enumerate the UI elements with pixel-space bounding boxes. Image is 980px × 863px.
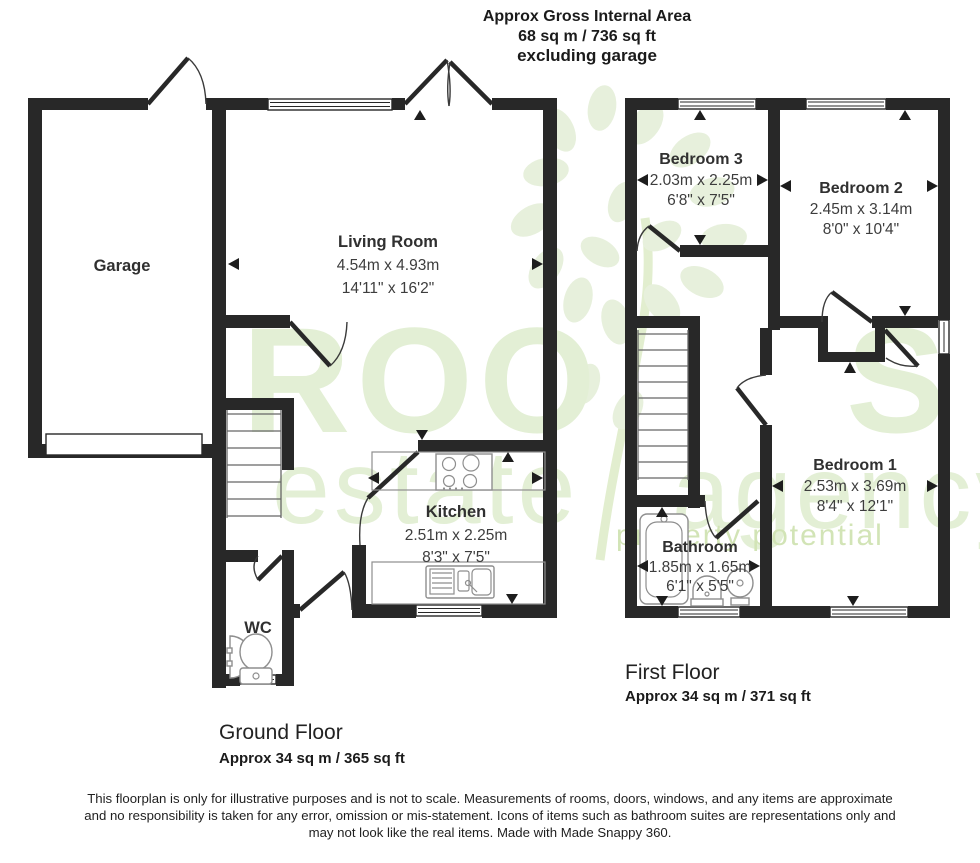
door [300, 572, 352, 610]
garage-door [46, 434, 202, 455]
door [737, 375, 766, 425]
room-label-kitchen: Kitchen [426, 503, 487, 521]
room-size-ft: 6'8" x 7'5" [667, 192, 735, 209]
room-label-bathroom: Bathroom [662, 539, 738, 556]
window [806, 99, 886, 109]
floorplan-page: ROO S estate agency property potential A… [0, 0, 980, 863]
kitchen-sink-icon [426, 566, 494, 598]
window [678, 99, 756, 109]
disclaimer-line1: This floorplan is only for illustrative … [87, 791, 893, 806]
window [830, 607, 908, 617]
dimension-arrow-icon [694, 110, 706, 120]
disclaimer-line2: and no responsibility is taken for any e… [84, 808, 895, 823]
dimension-arrow-icon [637, 174, 648, 186]
room-size-m: 1.85m x 1.65m [649, 559, 752, 576]
dimension-arrow-icon [757, 174, 768, 186]
room-size-ft: 8'0" x 10'4" [823, 221, 899, 238]
dimension-arrow-icon [656, 507, 668, 517]
window [939, 320, 949, 354]
dimension-arrow-icon [414, 110, 426, 120]
room-label-garage: Garage [94, 257, 151, 275]
ground-floor-title: Ground Floor [219, 721, 343, 744]
window [268, 99, 392, 110]
floor-captions: Ground Floor Approx 34 sq m / 365 sq ft … [219, 661, 811, 767]
header-line3: excluding garage [517, 46, 657, 65]
dimension-arrow-icon [228, 258, 239, 270]
room-size-m: 2.51m x 2.25m [405, 527, 508, 544]
header-line1: Approx Gross Internal Area [483, 8, 691, 25]
window [678, 607, 740, 617]
room-label-bedroom-2: Bedroom 2 [819, 180, 903, 197]
room-size-ft: 6'1" x 5'5" [666, 578, 734, 595]
door [254, 556, 282, 580]
disclaimer-line3: may not look like the real items. Made w… [309, 825, 672, 840]
room-size-ft: 8'3" x 7'5" [422, 549, 490, 566]
first-floor-title: First Floor [625, 661, 720, 684]
ground-floor-area: Approx 34 sq m / 365 sq ft [219, 750, 405, 767]
room-size-m: 2.45m x 3.14m [810, 201, 913, 218]
french-doors [405, 60, 492, 106]
first-floor-area: Approx 34 sq m / 371 sq ft [625, 688, 811, 705]
room-label-bedroom-3: Bedroom 3 [659, 151, 743, 168]
hob-icon [436, 454, 492, 490]
disclaimer: This floorplan is only for illustrative … [84, 791, 895, 840]
room-size-ft: 8'4" x 12'1" [817, 498, 893, 515]
toilet-icon [240, 634, 272, 684]
floorplan-svg: ROO S estate agency property potential A… [0, 0, 980, 863]
dimension-arrow-icon [847, 596, 859, 606]
room-size-m: 4.54m x 4.93m [337, 257, 440, 274]
room-size-m: 2.53m x 3.69m [804, 478, 907, 495]
room-label-living-room: Living Room [338, 233, 438, 251]
room-label-wc: WC [244, 619, 272, 637]
room-size-ft: 14'11" x 16'2" [342, 280, 434, 297]
dimension-arrow-icon [780, 180, 791, 192]
dimension-arrow-icon [927, 180, 938, 192]
room-size-m: 2.03m x 2.25m [650, 172, 753, 189]
dimension-arrow-icon [899, 110, 911, 120]
dimension-arrow-icon [506, 594, 518, 604]
header: Approx Gross Internal Area 68 sq m / 736… [483, 8, 691, 65]
door [148, 58, 206, 104]
header-line2: 68 sq m / 736 sq ft [518, 28, 657, 45]
window [416, 605, 482, 616]
room-label-bedroom-1: Bedroom 1 [813, 457, 897, 474]
